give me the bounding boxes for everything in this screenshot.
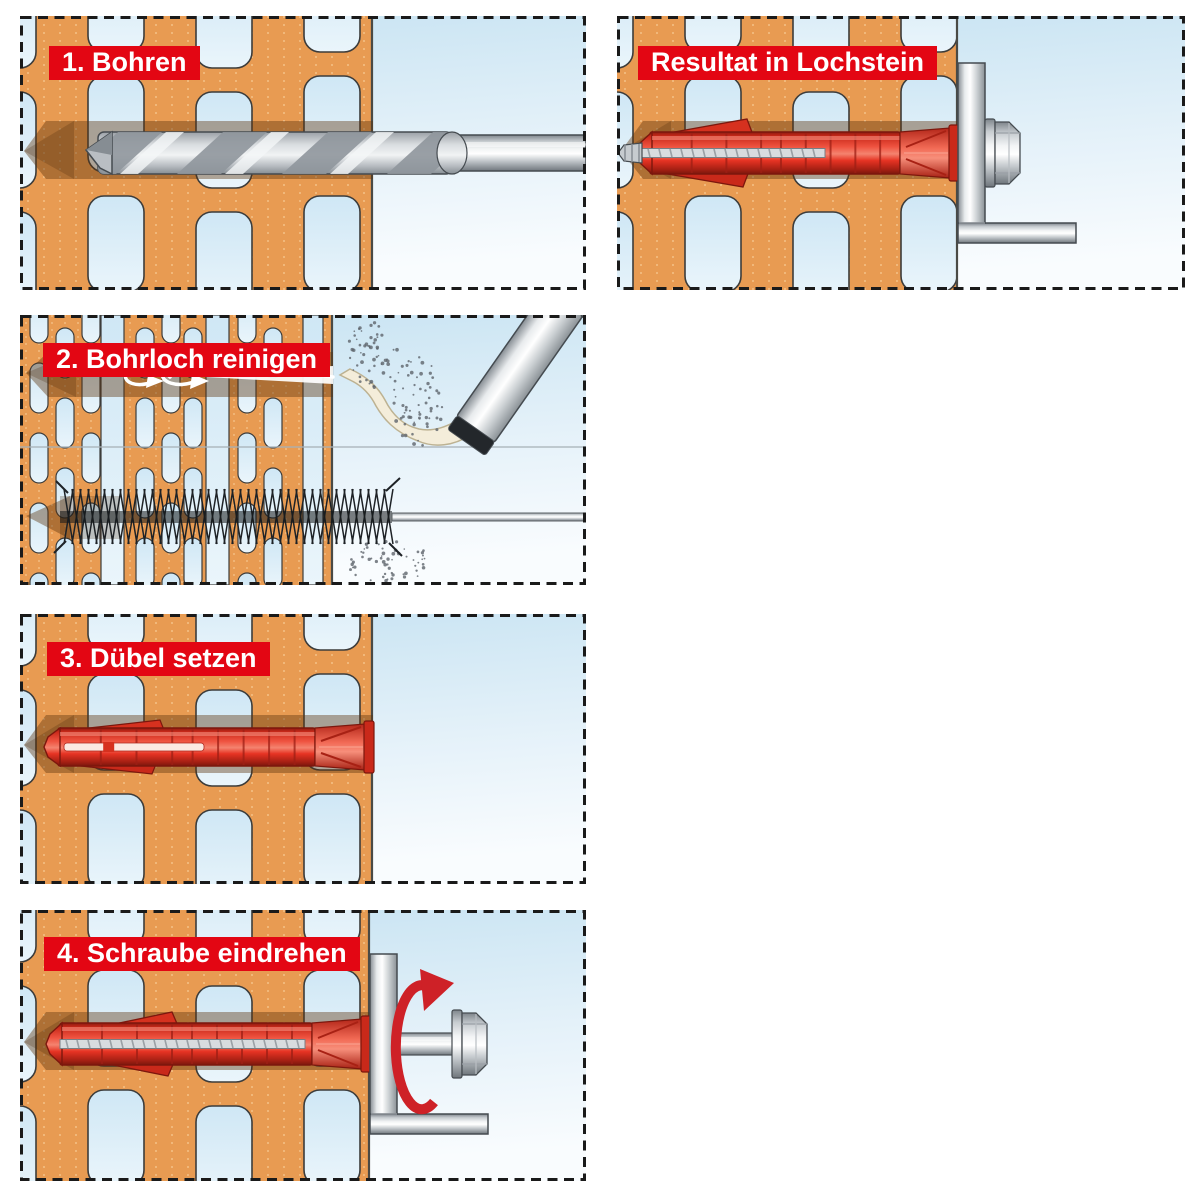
installation-instruction-sheet: 1. Bohren Resultat in Lochstein 2. Bohrl… — [0, 0, 1200, 1200]
panel-step-2-bohrloch-reinigen: 2. Bohrloch reinigen — [20, 315, 586, 585]
anchor — [44, 720, 374, 774]
screw-shank — [397, 1033, 454, 1055]
panel-step-1-bohren: 1. Bohren — [20, 16, 586, 290]
step-label: 1. Bohren — [49, 46, 200, 80]
step-label: 2. Bohrloch reinigen — [43, 343, 330, 377]
step-label: 4. Schraube eindrehen — [44, 937, 360, 971]
hex-screw-head — [452, 1010, 487, 1078]
panel-step-3-duebel-setzen: 3. Dübel setzen — [20, 614, 586, 884]
drill-bit — [72, 132, 586, 174]
step-label: Resultat in Lochstein — [638, 46, 937, 80]
step-label: 3. Dübel setzen — [47, 642, 270, 676]
panel-step-4-schraube-eindrehen: 4. Schraube eindrehen — [20, 910, 586, 1181]
panel-result-lochstein: Resultat in Lochstein — [617, 16, 1185, 290]
hex-screw-head — [985, 119, 1020, 187]
